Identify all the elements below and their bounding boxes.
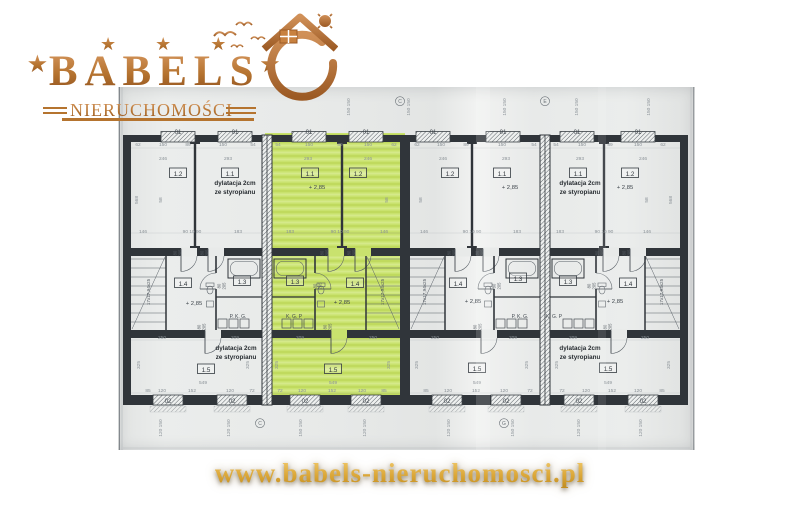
- svg-text:205: 205: [202, 323, 207, 331]
- svg-text:01: 01: [430, 129, 437, 136]
- svg-text:568: 568: [134, 196, 140, 204]
- svg-text:120: 120: [582, 388, 590, 394]
- svg-text:325: 325: [414, 361, 420, 369]
- svg-text:K. G. P: K. G. P: [286, 314, 303, 320]
- svg-text:+ 2,85: + 2,85: [186, 301, 203, 307]
- svg-text:1.3: 1.3: [238, 279, 247, 286]
- svg-text:ze styropianu: ze styropianu: [560, 354, 601, 361]
- svg-text:205: 205: [178, 249, 183, 257]
- svg-text:89: 89: [607, 142, 613, 148]
- svg-text:1.5: 1.5: [329, 367, 338, 374]
- svg-text:120: 120: [358, 388, 366, 394]
- svg-text:dylatacja 2cm: dylatacja 2cm: [215, 345, 257, 352]
- bird-icon: [231, 45, 243, 47]
- svg-text:02: 02: [503, 398, 510, 405]
- svg-text:325: 325: [245, 361, 251, 369]
- svg-text:183: 183: [556, 229, 564, 235]
- advert-image: ★ ★ ★ ★BABELS★ NIERUCHOMOŚCI: [0, 0, 800, 505]
- svg-text:250: 250: [369, 335, 377, 341]
- svg-text:58: 58: [644, 197, 650, 203]
- svg-text:250: 250: [641, 335, 649, 341]
- svg-text:150 150: 150 150: [406, 98, 412, 116]
- swoosh-icon: [271, 35, 333, 97]
- svg-text:1.3: 1.3: [564, 279, 573, 286]
- svg-text:325: 325: [666, 361, 672, 369]
- svg-text:146: 146: [643, 229, 651, 235]
- svg-text:205: 205: [452, 249, 457, 257]
- svg-text:325: 325: [554, 361, 560, 369]
- svg-text:1.2: 1.2: [174, 171, 183, 178]
- svg-text:183: 183: [513, 229, 521, 235]
- svg-text:02: 02: [229, 398, 236, 405]
- svg-text:146: 146: [139, 229, 147, 235]
- svg-text:01: 01: [574, 129, 581, 136]
- svg-text:17x17,94x25: 17x17,94x25: [422, 278, 427, 305]
- svg-text:P. K. G.: P. K. G.: [512, 314, 529, 320]
- svg-text:293: 293: [576, 156, 584, 162]
- svg-text:1.2: 1.2: [354, 171, 363, 178]
- svg-text:62: 62: [135, 142, 141, 148]
- svg-text:205: 205: [592, 282, 597, 290]
- svg-text:1.3: 1.3: [291, 279, 300, 286]
- bird-icon: [214, 32, 236, 36]
- svg-text:120 150: 120 150: [576, 419, 582, 437]
- svg-text:+ 2,85: + 2,85: [309, 185, 326, 191]
- svg-text:02: 02: [640, 398, 647, 405]
- svg-text:120: 120: [500, 388, 508, 394]
- svg-text:K. G. P: K. G. P: [546, 314, 563, 320]
- svg-text:17x17,94x25: 17x17,94x25: [146, 278, 151, 305]
- svg-text:568: 568: [668, 196, 674, 204]
- svg-text:58: 58: [384, 197, 390, 203]
- svg-text:72: 72: [527, 388, 533, 394]
- svg-text:1.4: 1.4: [179, 281, 188, 288]
- svg-text:205: 205: [627, 249, 632, 257]
- svg-text:02: 02: [444, 398, 451, 405]
- svg-text:150: 150: [219, 142, 227, 148]
- svg-text:246: 246: [364, 156, 372, 162]
- svg-text:205: 205: [352, 249, 357, 257]
- svg-text:150 150: 150 150: [510, 419, 516, 437]
- svg-text:58: 58: [158, 197, 164, 203]
- svg-text:01: 01: [635, 129, 642, 136]
- svg-text:205: 205: [608, 323, 613, 331]
- svg-text:1.3: 1.3: [514, 276, 523, 283]
- svg-text:85: 85: [659, 388, 665, 394]
- svg-text:205: 205: [205, 249, 210, 257]
- svg-text:293: 293: [502, 156, 510, 162]
- svg-text:246: 246: [159, 156, 167, 162]
- website-url-link[interactable]: www.babels-nieruchomosci.pl: [215, 458, 586, 489]
- svg-text:209: 209: [296, 335, 304, 341]
- svg-text:205: 205: [222, 282, 227, 290]
- svg-text:120 150: 120 150: [446, 419, 452, 437]
- svg-text:02: 02: [302, 398, 309, 405]
- svg-text:152: 152: [188, 388, 196, 394]
- svg-text:02: 02: [576, 398, 583, 405]
- svg-text:85: 85: [423, 388, 429, 394]
- svg-text:+ 2,85: + 2,85: [617, 185, 634, 191]
- svg-text:209: 209: [569, 335, 577, 341]
- svg-text:120: 120: [634, 388, 642, 394]
- svg-text:146: 146: [420, 229, 428, 235]
- svg-text:dylatacja 2cm: dylatacja 2cm: [559, 345, 601, 352]
- svg-text:120 150: 120 150: [158, 419, 164, 437]
- bird-icon: [236, 23, 252, 26]
- svg-text:dylatacja 2cm: dylatacja 2cm: [559, 180, 601, 187]
- svg-text:150 150: 150 150: [574, 98, 580, 116]
- decor-underline: [62, 118, 254, 121]
- unit-1: [131, 132, 262, 413]
- svg-text:209: 209: [509, 335, 517, 341]
- svg-text:549: 549: [199, 380, 207, 386]
- svg-text:120: 120: [298, 388, 306, 394]
- svg-text:54: 54: [250, 142, 256, 148]
- svg-text:205: 205: [318, 282, 323, 290]
- svg-text:62: 62: [414, 142, 420, 148]
- svg-text:72: 72: [277, 388, 283, 394]
- svg-text:120: 120: [158, 388, 166, 394]
- bird-icon: [251, 37, 265, 39]
- svg-text:ze styropianu: ze styropianu: [215, 189, 256, 196]
- babels-logo: ★ ★ ★ ★BABELS★ NIERUCHOMOŚCI: [18, 6, 348, 136]
- svg-text:85: 85: [381, 388, 387, 394]
- svg-text:89: 89: [185, 142, 191, 148]
- svg-text:120: 120: [444, 388, 452, 394]
- svg-text:1.1: 1.1: [574, 171, 583, 178]
- svg-text:325: 325: [136, 361, 142, 369]
- svg-text:209: 209: [231, 335, 239, 341]
- svg-text:+ 2,85: + 2,85: [607, 299, 624, 305]
- svg-text:183: 183: [234, 229, 242, 235]
- svg-text:325: 325: [274, 361, 280, 369]
- house-swoosh-icon: [206, 6, 338, 110]
- svg-text:E: E: [543, 99, 547, 105]
- svg-text:1.1: 1.1: [498, 171, 507, 178]
- svg-text:152: 152: [328, 388, 336, 394]
- svg-text:250: 250: [158, 335, 166, 341]
- svg-text:+ 2,85: + 2,85: [502, 185, 519, 191]
- svg-text:150 150: 150 150: [298, 419, 304, 437]
- svg-text:150: 150: [159, 142, 167, 148]
- svg-text:54: 54: [553, 142, 559, 148]
- sun-icon: [315, 11, 335, 31]
- decor-line: [43, 107, 67, 109]
- svg-text:150: 150: [437, 142, 445, 148]
- svg-text:325: 325: [524, 361, 530, 369]
- svg-text:1.2: 1.2: [626, 171, 635, 178]
- svg-text:205: 205: [497, 282, 502, 290]
- svg-text:01: 01: [500, 129, 507, 136]
- decor-line: [226, 112, 256, 114]
- svg-text:120 150: 120 150: [362, 419, 368, 437]
- svg-text:62: 62: [391, 142, 397, 148]
- svg-text:205: 205: [328, 323, 333, 331]
- svg-text:150 150: 150 150: [646, 98, 652, 116]
- svg-text:1.4: 1.4: [351, 281, 360, 288]
- floor-plan-svg: 1.21.11.41.31.51.11.21.31.41.51.21.11.31…: [118, 87, 695, 450]
- svg-text:1.5: 1.5: [202, 367, 211, 374]
- svg-text:ze styropianu: ze styropianu: [216, 354, 257, 361]
- svg-text:325: 325: [386, 361, 392, 369]
- svg-text:ze styropianu: ze styropianu: [560, 189, 601, 196]
- svg-text:58: 58: [418, 197, 424, 203]
- svg-text:P. K. G.: P. K. G.: [230, 314, 247, 320]
- svg-text:150: 150: [578, 142, 586, 148]
- svg-text:1.1: 1.1: [226, 171, 235, 178]
- svg-text:150 150: 150 150: [502, 98, 508, 116]
- svg-text:72: 72: [249, 388, 255, 394]
- svg-text:02: 02: [363, 398, 370, 405]
- svg-text:89: 89: [337, 142, 343, 148]
- footer-bar: www.babels-nieruchomosci.pl: [0, 458, 800, 489]
- svg-text:72: 72: [559, 388, 565, 394]
- svg-text:146: 146: [380, 229, 388, 235]
- svg-text:150: 150: [634, 142, 642, 148]
- svg-text:85: 85: [145, 388, 151, 394]
- svg-text:549: 549: [329, 380, 337, 386]
- svg-text:54: 54: [275, 142, 281, 148]
- svg-text:150: 150: [364, 142, 372, 148]
- svg-text:120 150: 120 150: [226, 419, 232, 437]
- svg-text:54: 54: [531, 142, 537, 148]
- svg-text:293: 293: [224, 156, 232, 162]
- svg-text:246: 246: [439, 156, 447, 162]
- svg-text:C: C: [258, 421, 262, 427]
- svg-text:62: 62: [660, 142, 666, 148]
- svg-text:293: 293: [304, 156, 312, 162]
- svg-text:150: 150: [305, 142, 313, 148]
- svg-text:183: 183: [286, 229, 294, 235]
- svg-text:+ 2,85: + 2,85: [334, 300, 351, 306]
- svg-text:90 10 90: 90 10 90: [331, 229, 350, 235]
- floor-plan: 1.21.11.41.31.51.11.21.31.41.51.21.11.31…: [118, 87, 695, 450]
- svg-text:17x17,94x25: 17x17,94x25: [380, 278, 385, 305]
- svg-text:17x17,94x25: 17x17,94x25: [659, 278, 664, 305]
- svg-text:90 10 90: 90 10 90: [183, 229, 202, 235]
- svg-text:250: 250: [431, 335, 439, 341]
- svg-text:1.1: 1.1: [306, 171, 315, 178]
- svg-text:1.4: 1.4: [624, 281, 633, 288]
- star-icon: ★: [28, 52, 49, 76]
- svg-text:02: 02: [165, 398, 172, 405]
- svg-text:150: 150: [498, 142, 506, 148]
- svg-text:01: 01: [363, 129, 370, 136]
- svg-text:89: 89: [463, 142, 469, 148]
- decor-line: [43, 112, 67, 114]
- svg-text:246: 246: [639, 156, 647, 162]
- svg-text:C: C: [398, 99, 402, 105]
- svg-text:120: 120: [226, 388, 234, 394]
- svg-text:1.2: 1.2: [446, 171, 455, 178]
- svg-text:1.4: 1.4: [454, 281, 463, 288]
- svg-text:G: G: [502, 421, 506, 427]
- svg-text:152: 152: [608, 388, 616, 394]
- svg-text:120 150: 120 150: [638, 419, 644, 437]
- svg-text:dylatacja 2cm: dylatacja 2cm: [214, 180, 256, 187]
- svg-text:205: 205: [325, 249, 330, 257]
